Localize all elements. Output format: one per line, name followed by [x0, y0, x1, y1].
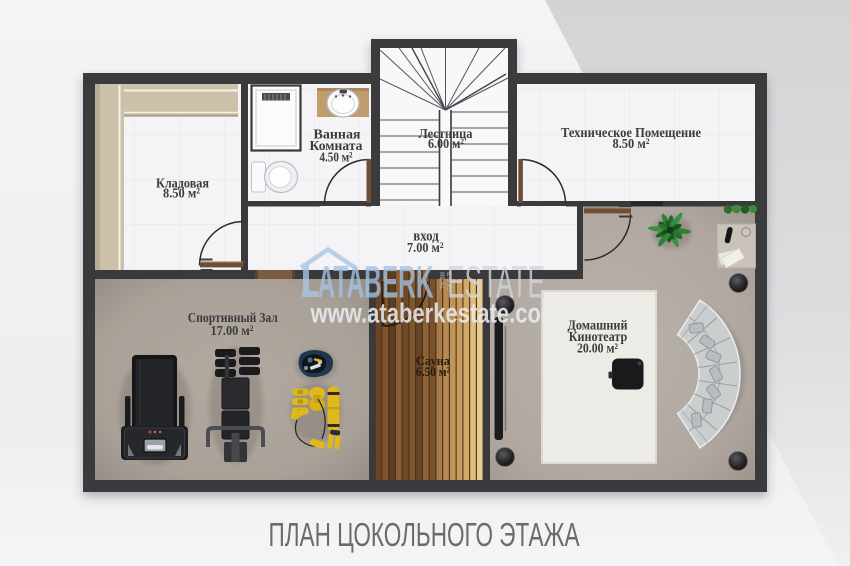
svg-text:6.00 м²: 6.00 м² [428, 137, 464, 152]
svg-text:ПЛАН ЦОКОЛЬНОГО ЭТАЖА: ПЛАН ЦОКОЛЬНОГО ЭТАЖА [269, 516, 580, 553]
svg-text:7.00 м²: 7.00 м² [407, 241, 444, 256]
svg-text:4.50 м²: 4.50 м² [320, 151, 353, 166]
svg-text:REAL: REAL [438, 272, 445, 290]
svg-text:www.ataberkestate.com: www.ataberkestate.com [310, 298, 561, 329]
svg-text:20.00 м²: 20.00 м² [577, 340, 618, 355]
svg-text:8.50 м²: 8.50 м² [163, 187, 200, 202]
svg-text:8.50 м²: 8.50 м² [613, 137, 650, 152]
svg-text:17.00 м²: 17.00 м² [211, 324, 254, 339]
svg-text:6.50 м²: 6.50 м² [416, 364, 450, 379]
